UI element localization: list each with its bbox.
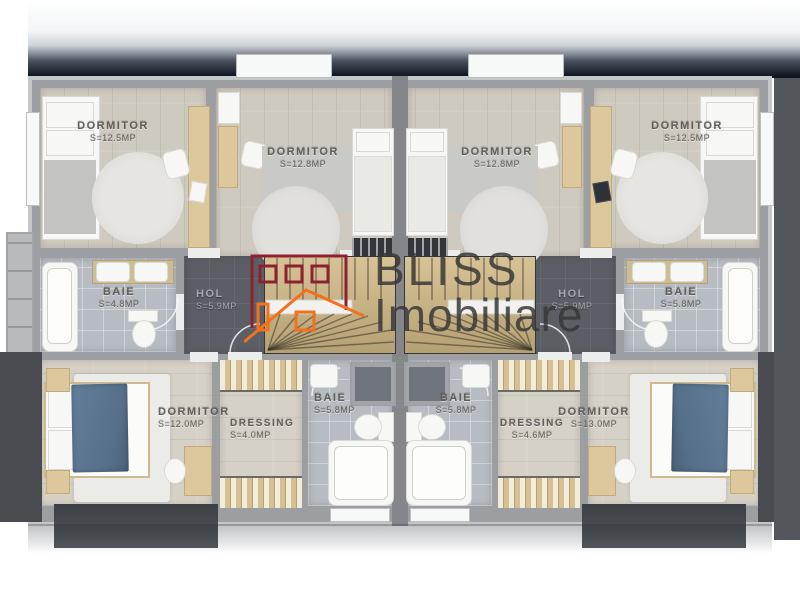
room-label-dressing: DRESSINGS=4.6MP (494, 418, 570, 441)
balcony-steps (6, 232, 34, 356)
room-label-bedroom-1: DORMITORS=12.5MP (58, 120, 168, 144)
logo-text-imobiliare: Imobiliare (374, 288, 583, 342)
room-label-bedroom-1: DORMITORS=12.5MP (632, 120, 742, 144)
pillow (724, 430, 752, 470)
bottom-shadow (28, 524, 772, 554)
wardrobe (220, 360, 302, 392)
desk (184, 446, 212, 496)
sink (310, 364, 338, 388)
nightstand (46, 368, 70, 392)
nightstand (46, 470, 70, 494)
chair (614, 458, 636, 484)
sink (462, 364, 490, 388)
room-label-bathroom-1: BAIES=4.8MP (84, 286, 154, 310)
room-label-dressing: DRESSINGS=4.0MP (230, 418, 306, 441)
bathtub-basin (412, 446, 466, 500)
room-label-bedroom-2: DORMITORS=12.8MP (248, 146, 358, 170)
room-label-bedroom-2: DORMITORS=12.8MP (442, 146, 552, 170)
wardrobe (498, 476, 580, 508)
right-exterior-band (774, 78, 800, 540)
bliss-logo-house-icon (244, 248, 368, 346)
room-label-bathroom-2: BAIES=5.8MP (314, 392, 374, 416)
room-label-bathroom-1: BAIES=5.8MP (646, 286, 716, 310)
wardrobe (220, 476, 302, 508)
toilet (418, 414, 446, 440)
nightstand (730, 470, 754, 494)
blue-duvet (671, 384, 729, 473)
blue-duvet (71, 384, 129, 473)
desk (588, 446, 616, 496)
nightstand (730, 368, 754, 392)
terrace (0, 352, 42, 522)
room-label-bathroom-2: BAIES=5.8MP (426, 392, 486, 416)
wardrobe (498, 360, 580, 392)
toilet (354, 414, 382, 440)
bathtub-basin (334, 446, 388, 500)
floor-plan-page: DORMITORS=12.5MP DORMITORS=12.8MP BAIES=… (0, 0, 800, 600)
chair (164, 458, 186, 484)
